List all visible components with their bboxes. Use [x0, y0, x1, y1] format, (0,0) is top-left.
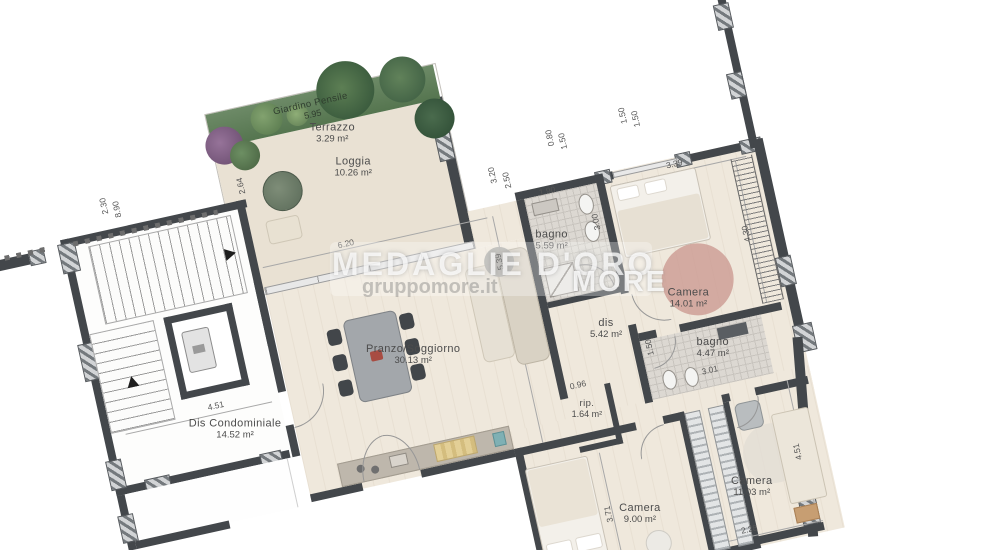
dim-win-d: 1.50	[556, 132, 569, 150]
stair-direction-arrow	[224, 247, 237, 261]
soggiorno-label: Pranzo/Soggiorno 30.13 m²	[366, 343, 460, 366]
camera2-label: Camera 9.00 m²	[619, 502, 661, 525]
rip-label: rip. 1.64 m²	[572, 398, 603, 419]
floor-plan-canvas: Giardino Pensile 5.95 Terrazzo 3.29 m² L…	[0, 0, 1000, 550]
dim-win-f: 1.50	[629, 110, 642, 128]
loggia-label: Loggia 10.26 m²	[334, 156, 372, 179]
terrazzo-label: Terrazzo 3.29 m²	[310, 121, 355, 144]
dim-stair-b: 8.90	[110, 200, 123, 218]
dis-label: dis 5.42 m²	[590, 317, 622, 340]
pillar	[726, 71, 747, 100]
bagno2-label: bagno 4.47 m²	[696, 336, 729, 359]
rotated-plan: Giardino Pensile 5.95 Terrazzo 3.29 m² L…	[0, 0, 1000, 550]
dim-win-e: 1.50	[616, 107, 629, 125]
camera1-label: Camera 14.01 m²	[668, 286, 710, 309]
dim-win-b: 2.50	[500, 171, 513, 189]
shower	[544, 262, 580, 298]
pillar	[713, 2, 734, 31]
dim-win-c: 0.80	[543, 129, 556, 147]
dim-stair-a: 2.30	[97, 197, 110, 215]
dim-win-a: 3.20	[486, 166, 499, 184]
dis-condominiale-label: Dis Condominiale 14.52 m²	[189, 417, 282, 440]
bagno1-label: bagno 5.59 m²	[535, 228, 568, 251]
camera3-label: Camera 11.03 m²	[731, 475, 773, 498]
